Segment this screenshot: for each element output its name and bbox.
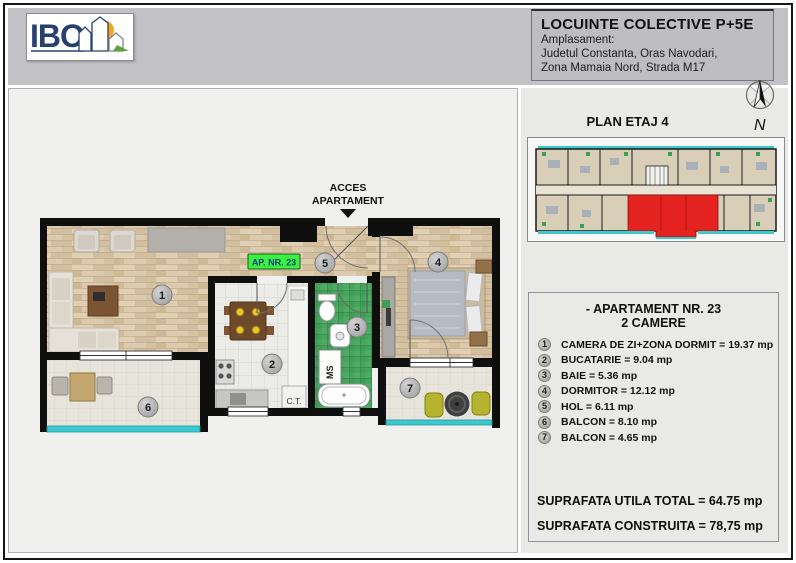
stove xyxy=(216,360,234,384)
floor-plan-title: PLAN ETAJ 4 xyxy=(545,114,710,129)
total-built-area: SUPRAFATA CONSTRUITA = 78,75 mp xyxy=(537,514,774,539)
location-label: Amplasament: xyxy=(541,33,764,47)
dining-table xyxy=(224,302,274,340)
room-marker-7: 7 xyxy=(400,378,420,398)
room-row: 4 DORMITOR = 12.12 mp xyxy=(529,384,778,400)
kitchen-sink xyxy=(291,290,304,300)
apartment-info-box: - APARTAMENT NR. 23 2 CAMERE 1 CAMERA DE… xyxy=(528,292,779,542)
access-line1: ACCES xyxy=(330,182,367,194)
bed xyxy=(408,268,485,339)
room-marker-5: 5 xyxy=(315,253,335,273)
boiler-label: C.T. xyxy=(286,396,301,406)
project-title: LOCUINTE COLECTIVE P+5E xyxy=(541,16,764,33)
location-line2: Zona Mamaia Nord, Strada M17 xyxy=(541,61,764,75)
room-area-label: CAMERA DE ZI+ZONA DORMIT = 19.37 mp xyxy=(561,339,773,351)
room-marker-1: 1 xyxy=(152,285,172,305)
totals-block: SUPRAFATA UTILA TOTAL = 64.75 mp SUPRAFA… xyxy=(537,489,774,539)
room-number-badge: 5 xyxy=(538,400,551,413)
room-marker-2: 2 xyxy=(262,354,282,374)
apartment-floorplan: ACCES APARTAMENT xyxy=(30,180,505,442)
logo-text: IBO xyxy=(30,18,84,54)
washing-machine-label: MS xyxy=(325,366,335,380)
svg-text:7: 7 xyxy=(407,383,413,395)
balcony6-railing xyxy=(47,426,200,432)
room-marker-4: 4 xyxy=(428,252,448,272)
room-row: 2 BUCATARIE = 9.04 mp xyxy=(529,353,778,369)
kitchen-counter-bottom xyxy=(216,390,268,408)
project-info-box: LOCUINTE COLECTIVE P+5E Amplasament: Jud… xyxy=(531,9,774,81)
compass-north-label: N xyxy=(754,117,766,134)
svg-text:5: 5 xyxy=(322,258,328,270)
logo-graphic: IBO xyxy=(27,14,131,58)
room-area-label: HOL = 6.11 mp xyxy=(561,401,633,413)
access-line2: APARTAMENT xyxy=(312,195,385,207)
svg-text:6: 6 xyxy=(145,402,151,414)
compass-icon: N xyxy=(737,78,783,136)
balcony7-table-set xyxy=(425,392,490,418)
stair-core xyxy=(646,166,668,185)
floorplan-sheet: IBO LOCUINTE COLECTIVE P+5E Amplasament:… xyxy=(0,0,796,563)
room-row: 3 BAIE = 5.36 mp xyxy=(529,368,778,384)
coffee-table xyxy=(88,286,118,316)
room-number-badge: 1 xyxy=(538,338,551,351)
washing-machine: MS xyxy=(319,350,341,384)
unit-tag: AP. NR. 23 xyxy=(248,254,300,269)
access-arrow-icon xyxy=(340,209,356,218)
room-row: 6 BALCON = 8.10 mp xyxy=(529,415,778,431)
room-area-label: BALCON = 8.10 mp xyxy=(561,416,657,428)
bathtub xyxy=(318,384,370,407)
floor-overview-map xyxy=(527,137,785,242)
company-logo: IBO xyxy=(26,13,134,61)
nightstand xyxy=(476,260,492,273)
total-useful-area: SUPRAFATA UTILA TOTAL = 64.75 mp xyxy=(537,489,774,514)
room-number-badge: 7 xyxy=(538,431,551,444)
room-area-label: BUCATARIE = 9.04 mp xyxy=(561,354,672,366)
kitchen-counter-right xyxy=(288,286,308,386)
room-marker-3: 3 xyxy=(347,317,367,337)
apartment-title: - APARTAMENT NR. 23 xyxy=(529,302,778,316)
svg-text:3: 3 xyxy=(354,322,360,334)
header-band: IBO LOCUINTE COLECTIVE P+5E Amplasament:… xyxy=(8,8,788,85)
room-area-label: BAIE = 5.36 mp xyxy=(561,370,637,382)
nightstand xyxy=(470,332,487,346)
room-row: 5 HOL = 6.11 mp xyxy=(529,399,778,415)
balcony7-railing xyxy=(386,420,492,425)
highlighted-apartment xyxy=(628,195,718,237)
svg-text:4: 4 xyxy=(435,257,442,269)
svg-text:1: 1 xyxy=(159,290,165,302)
room-number-badge: 6 xyxy=(538,416,551,429)
room-area-label: BALCON = 4.65 mp xyxy=(561,432,657,444)
room-number-badge: 4 xyxy=(538,385,551,398)
room-marker-6: 6 xyxy=(138,397,158,417)
room-area-label: DORMITOR = 12.12 mp xyxy=(561,385,675,397)
apartment-subtitle: 2 CAMERE xyxy=(529,316,778,330)
room-row: 1 CAMERA DE ZI+ZONA DORMIT = 19.37 mp xyxy=(529,337,778,353)
rug xyxy=(148,228,225,252)
room-number-badge: 3 xyxy=(538,369,551,382)
toilet xyxy=(318,294,336,321)
wardrobe-handle xyxy=(386,308,391,326)
location-line1: Judetul Constanta, Oras Navodari, xyxy=(541,47,764,61)
svg-text:2: 2 xyxy=(269,359,275,371)
plant xyxy=(382,300,390,308)
unit-tag-label: AP. NR. 23 xyxy=(252,258,296,268)
room-row: 7 BALCON = 4.65 mp xyxy=(529,430,778,446)
room-number-badge: 2 xyxy=(538,354,551,367)
access-label: ACCES APARTAMENT xyxy=(312,182,385,218)
